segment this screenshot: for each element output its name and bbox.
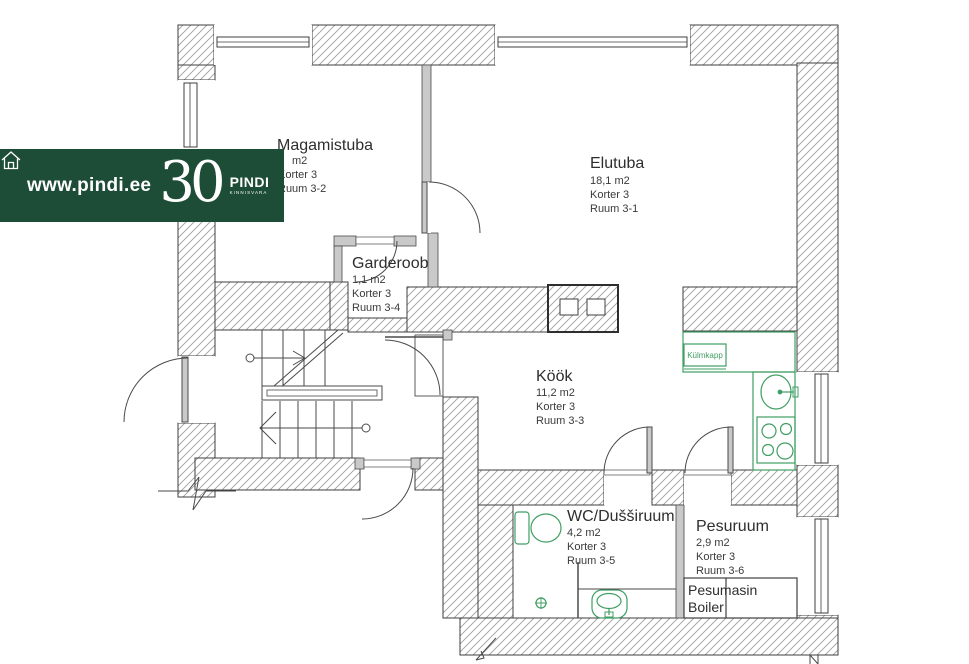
room-name: Elutuba (590, 155, 644, 172)
floorplan-canvas: Magamistuba m2 Korter 3 Ruum 3-2 Elutuba… (0, 0, 969, 664)
wall-garderoob-top-left (334, 236, 356, 246)
door-bedroom-leaf (422, 182, 427, 233)
wall-bedroom-bottom (215, 282, 347, 330)
floorplan-drawing: Magamistuba m2 Korter 3 Ruum 3-2 Elutuba… (0, 0, 969, 664)
kitchen-counter-right (753, 372, 795, 470)
wall-pesuruum-top-right (731, 470, 797, 505)
staircase (246, 330, 382, 458)
flue-opening-1 (560, 299, 578, 315)
door-corridor (362, 460, 413, 519)
label-kook: Köök 11,2 m2 Korter 3 Ruum 3-3 (536, 368, 584, 427)
wall-livingroom-kitchen-right (683, 287, 797, 331)
wall-right-mid (797, 465, 838, 517)
wall-garderoob-bottom (348, 318, 407, 332)
door-entry (124, 356, 215, 423)
stair-direction-arrow-down (260, 412, 370, 444)
washer-label: Pesumasin (688, 582, 757, 598)
wall-top-right (690, 25, 838, 65)
wall-hall-kitchen-mass (443, 397, 478, 618)
stair-direction-arrow-up (246, 351, 305, 365)
wall-livingroom-kitchen-left (407, 287, 548, 332)
label-magamistuba: Magamistuba m2 Korter 3 Ruum 3-2 (277, 137, 373, 195)
wall-wc-left (478, 505, 513, 618)
room-korter: Korter 3 (567, 541, 606, 553)
wall-left-a (178, 65, 215, 80)
room-ruum: Ruum 3-6 (696, 565, 744, 577)
wall-bedroom-living-partition (422, 65, 431, 182)
label-pesuruum: Pesuruum 2,9 m2 Korter 3 Ruum 3-6 (696, 518, 769, 577)
corridor-door-jamb-left (355, 458, 364, 469)
wall-wc-pesuruum (676, 505, 684, 618)
door-wc (604, 427, 652, 505)
chimney-block (548, 285, 618, 332)
door-wc-leaf (647, 427, 652, 473)
stairs-lower-flight (262, 401, 352, 458)
room-name: Köök (536, 368, 573, 385)
room-ruum: Ruum 3-4 (352, 302, 400, 314)
door-wc-swing (604, 427, 650, 473)
anniversary-30-logo: 30 (159, 155, 220, 211)
wall-garderoob-left (334, 246, 342, 282)
flue-opening-2 (587, 299, 605, 315)
wall-top-left (178, 25, 214, 65)
room-ruum: Ruum 3-5 (567, 555, 615, 567)
room-korter: Korter 3 (536, 401, 575, 413)
banner-url: www.pindi.ee (27, 175, 151, 197)
door-entry-leaf (182, 357, 188, 422)
room-labels: Magamistuba m2 Korter 3 Ruum 3-2 Elutuba… (277, 137, 769, 615)
window-pesuruum-right (797, 517, 838, 615)
wall-garderoob-corner (330, 282, 348, 330)
boiler-label: Boiler (688, 599, 724, 615)
floor-drain (535, 597, 547, 609)
room-ruum: Ruum 3-1 (590, 203, 638, 215)
exterior-walls (178, 25, 838, 655)
kitchen-sink (761, 375, 798, 409)
wall-bottom (460, 618, 838, 655)
door-bedroom-swing (429, 182, 480, 233)
fridge-label: Külmkapp (687, 351, 723, 360)
brand-block: PINDI KINNISVARA (230, 175, 270, 196)
stair-handrail-2 (279, 333, 343, 389)
wall-right-upper (797, 63, 838, 372)
stove (757, 417, 795, 463)
wall-stair-bottom (195, 458, 360, 490)
door-hall-kitchen (385, 335, 443, 396)
room-name: Garderoob (352, 255, 429, 272)
washbasin (592, 590, 627, 618)
wall-top-mid (312, 25, 495, 65)
stairs-landing (262, 386, 382, 400)
label-wc: WC/Dušširuum 4,2 m2 Korter 3 Ruum 3-5 (567, 508, 675, 567)
door-pesuruum-swing (685, 427, 731, 473)
room-name: Pesuruum (696, 518, 769, 535)
window-kitchen-right (797, 372, 838, 465)
room-area: 1,1 m2 (352, 274, 386, 286)
room-name: Magamistuba (277, 137, 373, 154)
window-bedroom-left (178, 80, 215, 150)
room-korter: Korter 3 (352, 288, 391, 300)
room-area: m2 (292, 155, 307, 167)
room-area: 2,9 m2 (696, 537, 730, 549)
section-mark (810, 655, 818, 664)
room-area: 11,2 m2 (536, 387, 575, 399)
door-pesuruum (684, 427, 733, 505)
door-pesuruum-leaf (728, 427, 733, 473)
wall-garderoob-right (428, 233, 438, 287)
pindi-watermark-banner: www.pindi.ee 30 PINDI KINNISVARA (0, 149, 284, 222)
window-bedroom-top (214, 25, 312, 65)
room-area: 4,2 m2 (567, 527, 601, 539)
toilet (515, 512, 561, 544)
label-elutuba: Elutuba 18,1 m2 Korter 3 Ruum 3-1 (590, 155, 644, 215)
corridor-door-jamb-right (411, 458, 420, 469)
door-bedroom-living (422, 182, 480, 233)
room-korter: Korter 3 (696, 551, 735, 563)
wall-between-wc-pesuruum (652, 470, 684, 505)
brand-name: PINDI (230, 175, 270, 189)
room-name: WC/Dušširuum (567, 508, 675, 525)
wall-wc-top (478, 470, 604, 505)
room-ruum: Ruum 3-2 (278, 183, 326, 195)
room-ruum: Ruum 3-3 (536, 415, 584, 427)
door-corridor-swing (362, 468, 413, 519)
room-korter: Korter 3 (590, 189, 629, 201)
room-area: 18,1 m2 (590, 175, 630, 187)
wall-hall-kitchen-cap (443, 330, 452, 340)
brand-subtitle: KINNISVARA (230, 191, 270, 196)
window-livingroom-top (495, 25, 690, 65)
